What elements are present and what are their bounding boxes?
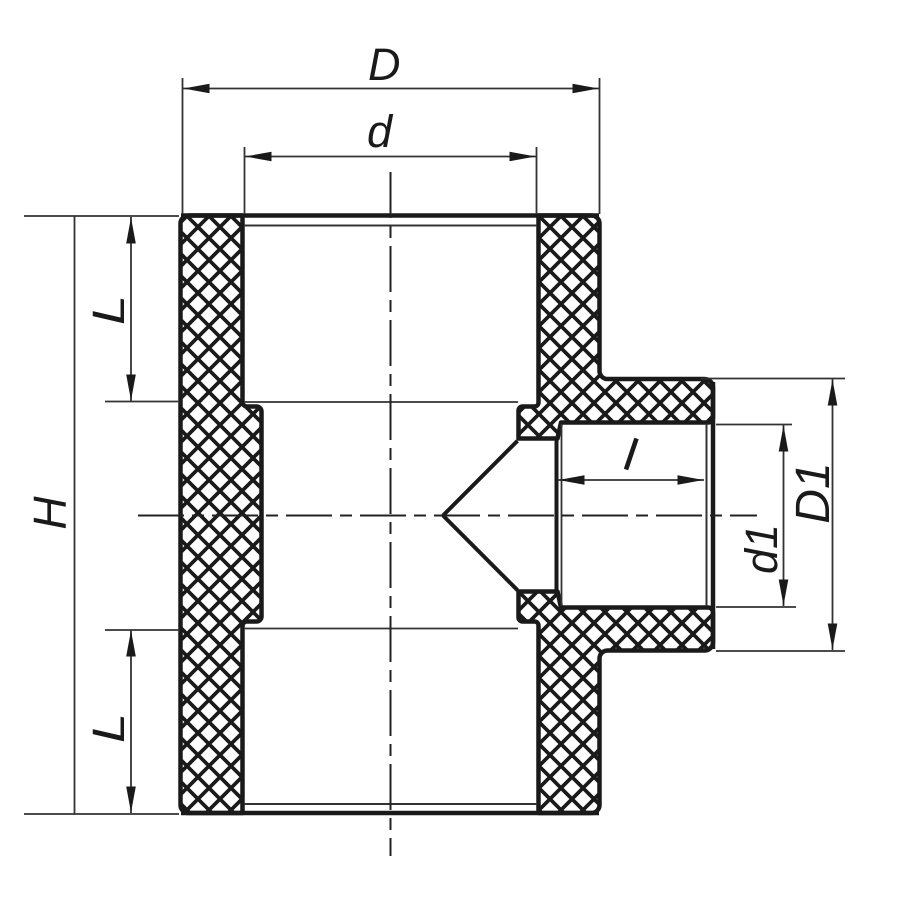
svg-text:d: d: [367, 106, 394, 157]
svg-text:L: L: [83, 713, 134, 743]
svg-text:D: D: [368, 39, 401, 90]
svg-text:L: L: [83, 295, 134, 325]
svg-text:d1: d1: [736, 524, 787, 574]
svg-text:H: H: [24, 496, 76, 530]
svg-text:D1: D1: [787, 462, 840, 523]
